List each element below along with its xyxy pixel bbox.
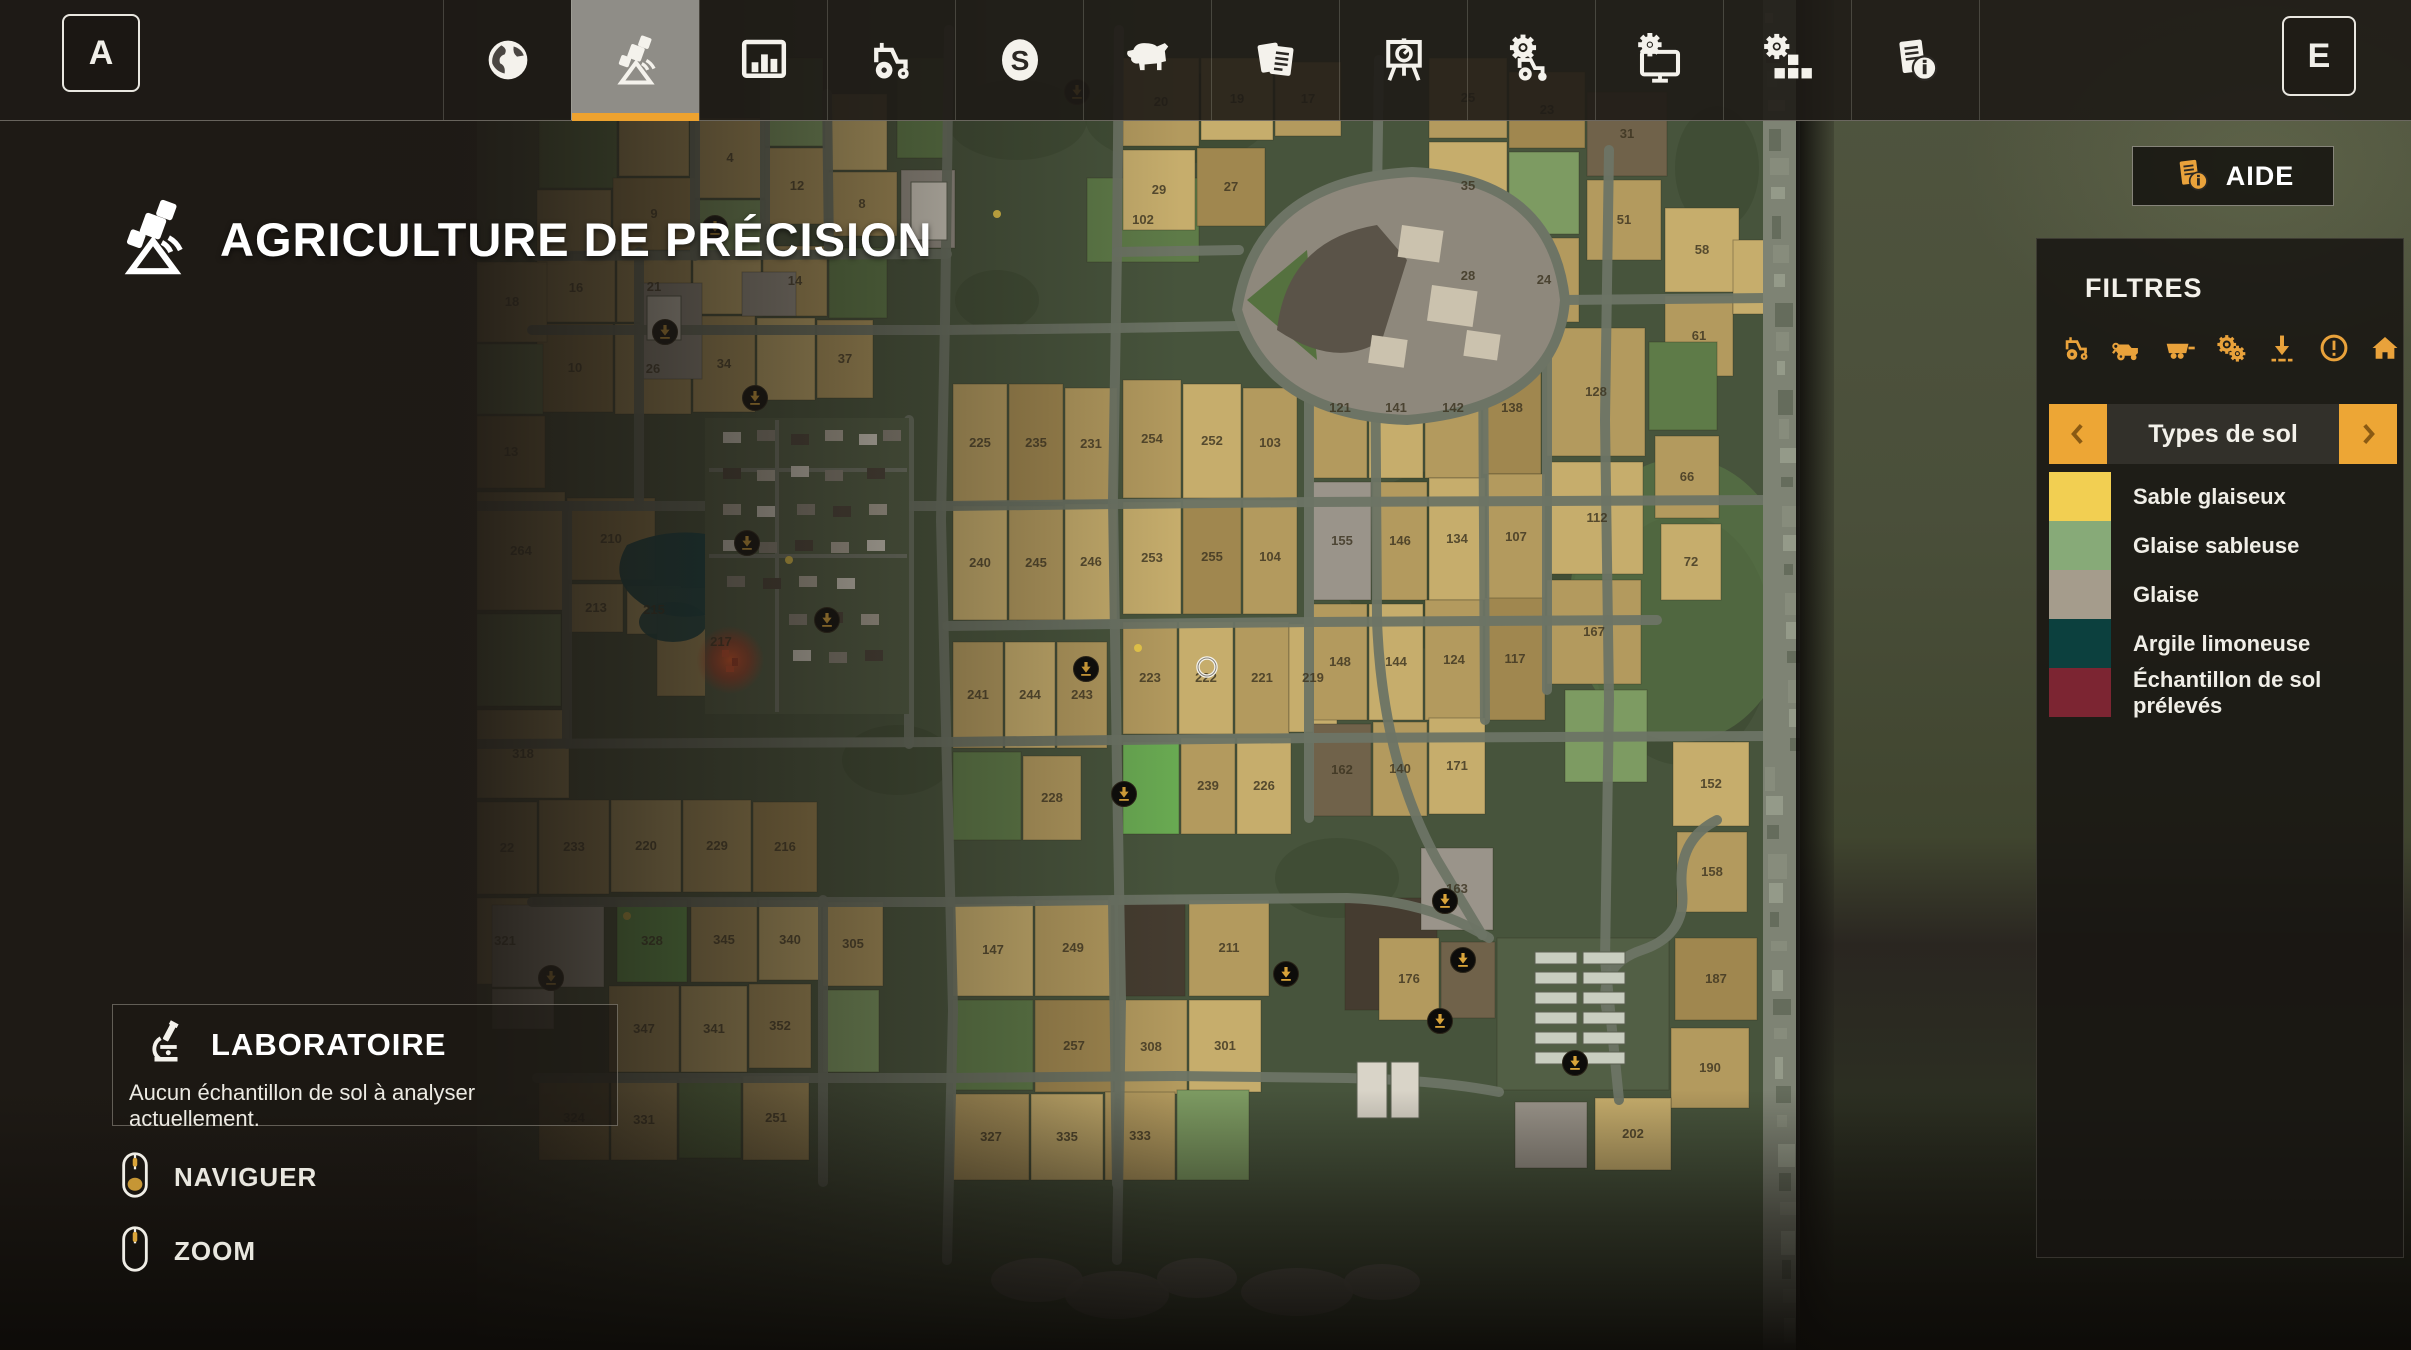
screen: 7941281621141026343718132643182102132152… bbox=[0, 0, 2411, 1350]
svg-text:158: 158 bbox=[1701, 864, 1723, 879]
svg-text:215: 215 bbox=[643, 602, 665, 617]
svg-text:219: 219 bbox=[1302, 670, 1324, 685]
svg-text:305: 305 bbox=[842, 936, 864, 951]
svg-text:245: 245 bbox=[1025, 555, 1047, 570]
svg-text:244: 244 bbox=[1019, 687, 1041, 702]
soil-sample-marker[interactable] bbox=[1563, 1051, 1588, 1076]
legend-label: Glaise sableuse bbox=[2133, 533, 2299, 559]
tab-map[interactable] bbox=[443, 0, 571, 120]
svg-text:243: 243 bbox=[1071, 687, 1093, 702]
laboratory-status: Aucun échantillon de sol à analyser actu… bbox=[129, 1080, 601, 1132]
legend-label: Sable glaiseux bbox=[2133, 484, 2286, 510]
hint-zoom: ZOOM bbox=[118, 1222, 317, 1280]
soil-sample-marker[interactable] bbox=[1433, 889, 1458, 914]
svg-text:327: 327 bbox=[980, 1129, 1002, 1144]
svg-text:241: 241 bbox=[967, 687, 989, 702]
help-button[interactable]: AIDE bbox=[2132, 146, 2334, 206]
legend-item: Glaise bbox=[2049, 570, 2403, 619]
svg-text:254: 254 bbox=[1141, 431, 1163, 446]
svg-text:58: 58 bbox=[1695, 242, 1709, 257]
svg-text:10: 10 bbox=[568, 360, 582, 375]
svg-text:176: 176 bbox=[1398, 971, 1420, 986]
svg-text:228: 228 bbox=[1041, 790, 1063, 805]
svg-text:72: 72 bbox=[1684, 554, 1698, 569]
svg-text:345: 345 bbox=[713, 932, 735, 947]
chart-icon bbox=[737, 33, 791, 87]
legend-item: Argile limoneuse bbox=[2049, 619, 2403, 668]
svg-text:223: 223 bbox=[1139, 670, 1161, 685]
svg-text:264: 264 bbox=[510, 543, 532, 558]
satellite-icon bbox=[609, 33, 663, 87]
svg-text:141: 141 bbox=[1385, 400, 1407, 415]
svg-text:51: 51 bbox=[1617, 212, 1631, 227]
svg-text:255: 255 bbox=[1201, 549, 1223, 564]
svg-text:167: 167 bbox=[1583, 624, 1605, 639]
svg-text:146: 146 bbox=[1389, 533, 1411, 548]
tab-precision-farming[interactable] bbox=[571, 0, 699, 120]
svg-text:216: 216 bbox=[774, 839, 796, 854]
svg-text:246: 246 bbox=[1080, 554, 1102, 569]
legend-label: Échantillon de sol prélevés bbox=[2133, 667, 2403, 719]
svg-text:221: 221 bbox=[1251, 670, 1273, 685]
svg-text:35: 35 bbox=[1461, 178, 1475, 193]
blocks-gear-icon bbox=[1761, 33, 1815, 87]
svg-text:235: 235 bbox=[1025, 435, 1047, 450]
cow-icon bbox=[1121, 33, 1175, 87]
svg-text:217: 217 bbox=[710, 634, 732, 649]
tab-game-settings[interactable] bbox=[1595, 0, 1723, 120]
legend-label: Glaise bbox=[2133, 582, 2199, 608]
svg-text:22: 22 bbox=[500, 840, 514, 855]
filter-gears-icon[interactable] bbox=[2213, 330, 2248, 366]
microscope-icon bbox=[143, 1019, 189, 1070]
svg-text:148: 148 bbox=[1329, 654, 1351, 669]
soil-sample-marker[interactable] bbox=[1112, 782, 1137, 807]
tractor-gear-icon bbox=[1505, 33, 1559, 87]
svg-text:328: 328 bbox=[641, 933, 663, 948]
svg-text:231: 231 bbox=[1080, 436, 1102, 451]
svg-text:301: 301 bbox=[1214, 1038, 1236, 1053]
key-label-e: E bbox=[2308, 37, 2331, 76]
soil-sample-marker[interactable] bbox=[743, 386, 768, 411]
svg-text:61: 61 bbox=[1692, 328, 1706, 343]
coin-icon: S bbox=[993, 33, 1047, 87]
svg-text:340: 340 bbox=[779, 932, 801, 947]
soil-type-selector: Types de sol bbox=[2049, 404, 2397, 464]
svg-text:121: 121 bbox=[1329, 400, 1351, 415]
soil-sample-marker[interactable] bbox=[1428, 1009, 1453, 1034]
svg-text:18: 18 bbox=[505, 294, 519, 309]
key-label-a: A bbox=[89, 34, 114, 73]
legend-item: Échantillon de sol prélevés bbox=[2049, 668, 2403, 717]
soil-sample-marker[interactable] bbox=[735, 531, 760, 556]
svg-text:308: 308 bbox=[1140, 1039, 1162, 1054]
svg-text:144: 144 bbox=[1385, 654, 1407, 669]
svg-text:34: 34 bbox=[717, 356, 732, 371]
svg-text:140: 140 bbox=[1389, 761, 1411, 776]
page-title: AGRICULTURE DE PRÉCISION bbox=[220, 212, 933, 267]
doc-info-icon bbox=[1889, 33, 1943, 87]
svg-text:347: 347 bbox=[633, 1021, 655, 1036]
svg-text:352: 352 bbox=[769, 1018, 791, 1033]
tab-general-settings[interactable] bbox=[1723, 0, 1851, 120]
svg-text:335: 335 bbox=[1056, 1129, 1078, 1144]
key-hint-prev: A bbox=[62, 14, 140, 92]
laboratory-title: LABORATOIRE bbox=[211, 1027, 446, 1063]
tab-prices[interactable] bbox=[699, 0, 827, 120]
svg-text:26: 26 bbox=[646, 361, 660, 376]
svg-text:202: 202 bbox=[1622, 1126, 1644, 1141]
svg-text:251: 251 bbox=[765, 1110, 787, 1125]
svg-text:112: 112 bbox=[1587, 510, 1608, 525]
soil-sample-marker[interactable] bbox=[1074, 657, 1099, 682]
svg-text:24: 24 bbox=[1537, 272, 1552, 287]
svg-text:155: 155 bbox=[1331, 533, 1353, 548]
svg-text:103: 103 bbox=[1259, 435, 1281, 450]
laboratory-box: LABORATOIRE Aucun échantillon de sol à a… bbox=[112, 1004, 618, 1126]
svg-text:226: 226 bbox=[1253, 778, 1275, 793]
soil-sample-marker[interactable] bbox=[539, 966, 564, 991]
tab-bar: S bbox=[443, 0, 1980, 120]
soil-sample-marker[interactable] bbox=[1274, 962, 1299, 987]
filter-download-icon[interactable] bbox=[2265, 330, 2300, 366]
svg-text:211: 211 bbox=[1219, 940, 1240, 955]
svg-text:104: 104 bbox=[1259, 549, 1281, 564]
legend-swatch bbox=[2049, 570, 2111, 619]
svg-text:12: 12 bbox=[790, 178, 804, 193]
svg-text:107: 107 bbox=[1505, 529, 1527, 544]
soil-sample-marker[interactable] bbox=[815, 608, 840, 633]
globe-icon bbox=[481, 33, 535, 87]
soil-legend: Sable glaiseux Glaise sableuse Glaise Ar… bbox=[2049, 472, 2403, 717]
tab-animals[interactable] bbox=[1083, 0, 1211, 120]
hint-naviguer: NAVIGUER bbox=[118, 1148, 317, 1206]
svg-text:257: 257 bbox=[1063, 1038, 1085, 1053]
svg-text:321: 321 bbox=[494, 933, 516, 948]
legend-swatch bbox=[2049, 619, 2111, 668]
svg-text:333: 333 bbox=[1129, 1128, 1151, 1143]
svg-text:233: 233 bbox=[563, 839, 585, 854]
filter-icon-row bbox=[2059, 330, 2403, 366]
tab-production[interactable] bbox=[1339, 0, 1467, 120]
svg-text:S: S bbox=[1010, 45, 1029, 76]
svg-text:102: 102 bbox=[1132, 212, 1154, 227]
svg-text:66: 66 bbox=[1680, 469, 1694, 484]
key-hint-next: E bbox=[2282, 16, 2356, 96]
filter-harvester-icon[interactable] bbox=[2110, 330, 2145, 366]
svg-text:13: 13 bbox=[504, 444, 518, 459]
legend-item: Sable glaiseux bbox=[2049, 472, 2403, 521]
tab-contracts[interactable] bbox=[1211, 0, 1339, 120]
svg-text:31: 31 bbox=[1620, 126, 1634, 141]
svg-text:138: 138 bbox=[1501, 400, 1523, 415]
svg-text:253: 253 bbox=[1141, 550, 1163, 565]
control-hints: NAVIGUER ZOOM bbox=[118, 1148, 317, 1296]
svg-text:225: 225 bbox=[969, 435, 991, 450]
tab-vehicles[interactable] bbox=[827, 0, 955, 120]
soil-sample-marker[interactable] bbox=[1451, 948, 1476, 973]
svg-text:210: 210 bbox=[600, 531, 622, 546]
svg-text:147: 147 bbox=[982, 942, 1004, 957]
mouse-drag-icon bbox=[118, 1149, 152, 1206]
satellite-icon bbox=[112, 196, 194, 283]
svg-text:187: 187 bbox=[1705, 971, 1727, 986]
svg-text:240: 240 bbox=[969, 555, 991, 570]
soil-sample-marker[interactable] bbox=[653, 320, 678, 345]
svg-text:142: 142 bbox=[1442, 400, 1464, 415]
svg-text:249: 249 bbox=[1062, 940, 1084, 955]
legend-item: Glaise sableuse bbox=[2049, 521, 2403, 570]
filter-trailer-icon[interactable] bbox=[2162, 330, 2197, 366]
svg-text:171: 171 bbox=[1446, 758, 1468, 773]
svg-text:252: 252 bbox=[1201, 433, 1223, 448]
map-edge-shadow bbox=[1796, 0, 1834, 1350]
prev-category-button[interactable] bbox=[2049, 404, 2107, 464]
papers-icon bbox=[1249, 33, 1303, 87]
legend-swatch bbox=[2049, 472, 2111, 521]
filter-tractor-icon[interactable] bbox=[2059, 330, 2094, 366]
next-category-button[interactable] bbox=[2339, 404, 2397, 464]
page-title-block: AGRICULTURE DE PRÉCISION bbox=[112, 196, 933, 283]
legend-swatch bbox=[2049, 668, 2111, 717]
svg-text:318: 318 bbox=[512, 746, 534, 761]
legend-swatch bbox=[2049, 521, 2111, 570]
svg-text:213: 213 bbox=[585, 600, 607, 615]
tractor-icon bbox=[865, 33, 919, 87]
tab-finances[interactable]: S bbox=[955, 0, 1083, 120]
top-bar: A S E bbox=[0, 0, 2411, 121]
svg-text:229: 229 bbox=[706, 838, 728, 853]
hint-label: NAVIGUER bbox=[174, 1162, 317, 1193]
svg-text:27: 27 bbox=[1224, 179, 1238, 194]
svg-text:29: 29 bbox=[1152, 182, 1166, 197]
svg-text:117: 117 bbox=[1505, 651, 1526, 666]
mouse-wheel-icon bbox=[118, 1223, 152, 1280]
svg-text:331: 331 bbox=[633, 1112, 655, 1127]
svg-text:134: 134 bbox=[1446, 531, 1468, 546]
svg-text:162: 162 bbox=[1331, 762, 1353, 777]
legend-label: Argile limoneuse bbox=[2133, 631, 2310, 657]
svg-text:128: 128 bbox=[1585, 384, 1607, 399]
filters-panel: FILTRES Types de sol Sable glaiseux Glai… bbox=[2036, 238, 2404, 1258]
svg-text:190: 190 bbox=[1699, 1060, 1721, 1075]
tab-help[interactable] bbox=[1851, 0, 1980, 120]
tab-garage[interactable] bbox=[1467, 0, 1595, 120]
svg-text:4: 4 bbox=[726, 150, 734, 165]
svg-text:341: 341 bbox=[703, 1021, 725, 1036]
svg-text:152: 152 bbox=[1700, 776, 1722, 791]
svg-text:37: 37 bbox=[838, 351, 852, 366]
monitor-gear-icon bbox=[1633, 33, 1687, 87]
svg-text:124: 124 bbox=[1443, 652, 1465, 667]
help-doc-info-icon bbox=[2172, 155, 2212, 198]
svg-text:220: 220 bbox=[635, 838, 657, 853]
hint-label: ZOOM bbox=[174, 1236, 256, 1267]
filter-alert-icon[interactable] bbox=[2316, 330, 2351, 366]
filters-title: FILTRES bbox=[2085, 273, 2403, 304]
help-button-label: AIDE bbox=[2226, 161, 2295, 192]
soil-type-selector-label: Types de sol bbox=[2107, 404, 2339, 464]
svg-text:28: 28 bbox=[1461, 268, 1475, 283]
easel-icon bbox=[1377, 33, 1431, 87]
filter-house-icon[interactable] bbox=[2368, 330, 2403, 366]
svg-text:239: 239 bbox=[1197, 778, 1219, 793]
